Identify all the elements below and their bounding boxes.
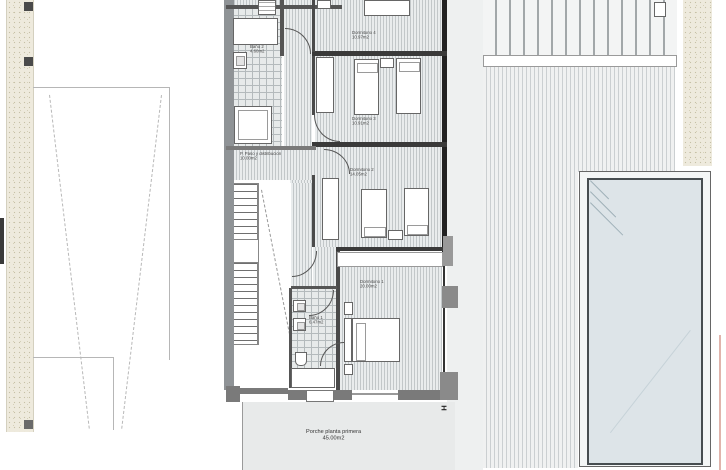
room-area: 45.00m2 xyxy=(306,435,361,441)
wall xyxy=(336,247,447,251)
stair-stringer xyxy=(258,183,259,345)
bedroom-2-label: Dormitorio 2 14.05m2 xyxy=(350,168,374,177)
sink-basin xyxy=(297,322,305,330)
wall-pillar xyxy=(442,286,458,308)
floor-plan: Dormitorio 4 10.97m2 Dormitorio 3 10.91m… xyxy=(0,0,726,470)
closet-icon xyxy=(316,57,334,113)
pillow xyxy=(399,62,420,72)
driveway-dash-line xyxy=(121,95,163,429)
pergola-slats xyxy=(483,0,677,55)
room-area: 4.60m2 xyxy=(250,49,264,53)
room-area: 20.00m2 xyxy=(360,284,384,288)
wall-bottom xyxy=(230,388,288,394)
path-tick xyxy=(24,57,33,66)
sink-icon xyxy=(293,300,306,312)
hallway-label: P. Paso y distribución 10.00m2 xyxy=(240,152,281,161)
wall-pillar xyxy=(443,236,453,266)
wall xyxy=(312,51,447,56)
bed-icon xyxy=(361,189,387,238)
wall xyxy=(226,146,316,150)
nightstand-icon xyxy=(344,302,353,315)
path-tick xyxy=(24,2,33,11)
utility-room xyxy=(291,368,335,388)
site-line xyxy=(169,87,170,360)
wall-right-thin xyxy=(443,252,445,377)
room-area: 6.47m2 xyxy=(309,320,323,324)
wall xyxy=(291,286,337,289)
sink-basin xyxy=(236,56,245,66)
room-area: 10.97m2 xyxy=(352,35,376,39)
wall-bottom xyxy=(398,390,444,400)
pillow xyxy=(357,63,378,73)
headboard xyxy=(344,318,352,362)
site-line xyxy=(33,87,170,88)
bedroom-4-label: Dormitorio 4 10.97m2 xyxy=(352,31,376,40)
room-area: 10.00m2 xyxy=(240,156,281,160)
nightstand-icon xyxy=(380,58,394,68)
wall xyxy=(280,0,284,56)
gravel-strip-right xyxy=(683,0,712,166)
wall xyxy=(312,142,447,147)
toilet-icon xyxy=(295,352,307,366)
driveway-dash-line xyxy=(49,95,91,429)
boundary-line-right xyxy=(719,335,721,470)
pillow xyxy=(364,227,386,237)
bath-1-label: Baño 1 6.47m2 xyxy=(309,316,323,325)
pillow xyxy=(356,323,366,361)
deck-upper xyxy=(483,67,675,172)
stairs-icon xyxy=(232,262,258,345)
wall xyxy=(312,56,315,115)
shower-icon xyxy=(234,106,272,144)
bed-icon xyxy=(354,59,379,115)
pergola-beam xyxy=(483,55,677,67)
skylight-icon xyxy=(258,0,276,15)
bed-icon xyxy=(352,318,400,362)
room-area: 14.05m2 xyxy=(350,172,374,176)
bed-icon xyxy=(364,0,410,16)
site-line xyxy=(33,357,114,358)
bed-icon xyxy=(396,58,421,114)
bedroom-3-label: Dormitorio 3 10.91m2 xyxy=(352,117,376,126)
wall xyxy=(312,175,315,247)
pergola-post xyxy=(654,2,666,17)
bedroom-1-label: Dormitorio 1 20.00m2 xyxy=(360,280,384,289)
wall-right xyxy=(442,0,447,252)
pool-water xyxy=(587,178,703,465)
pillow xyxy=(407,225,428,235)
sink-basin xyxy=(297,303,305,311)
wall xyxy=(336,251,340,390)
bed-icon xyxy=(404,188,429,236)
room-area: 10.91m2 xyxy=(352,121,376,125)
nightstand-icon xyxy=(344,364,353,375)
sink-icon xyxy=(293,318,306,331)
wall xyxy=(312,0,315,52)
wall-pillar xyxy=(440,372,458,400)
bath-2-label: Baño 2 4.60m2 xyxy=(250,45,264,54)
deck-poolside xyxy=(483,172,578,468)
path-tick xyxy=(24,420,33,429)
terrace-band xyxy=(337,252,443,267)
closet-icon xyxy=(233,18,278,45)
site-line xyxy=(113,357,114,430)
sliding-door-line xyxy=(352,393,398,395)
closet-icon xyxy=(322,178,339,240)
furniture-icon xyxy=(317,0,331,9)
porch-label: Porche planta primera 45.00m2 xyxy=(306,429,361,442)
stairs-icon xyxy=(232,183,258,240)
nightstand-icon xyxy=(388,230,403,240)
section-marker: H xyxy=(440,405,449,411)
threshold xyxy=(306,390,334,402)
boundary-post xyxy=(0,218,4,264)
